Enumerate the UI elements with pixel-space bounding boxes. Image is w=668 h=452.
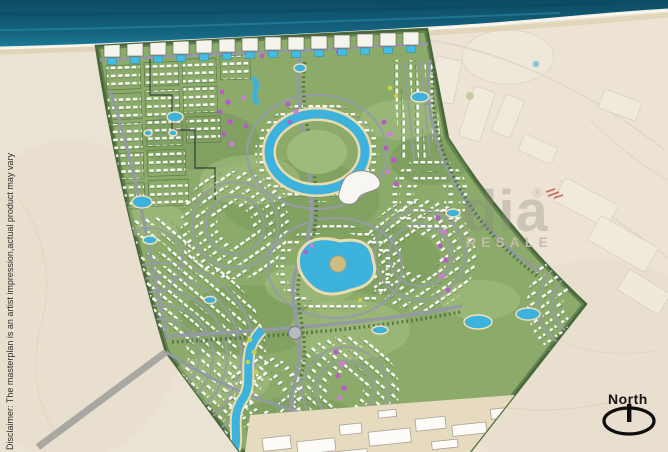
neighbour-green-spot: [466, 92, 474, 100]
lagoon-island: [330, 256, 346, 272]
compass-needle-icon: [627, 404, 631, 422]
watermark: dia ® RESALE: [462, 179, 563, 250]
masterplan-svg: dia ® RESALE Disclaimer: The masterplan …: [0, 0, 668, 452]
masterplan-image: dia ® RESALE Disclaimer: The masterplan …: [0, 0, 668, 452]
neighbour-pond: [533, 61, 539, 67]
watermark-subtext: RESALE: [466, 234, 553, 250]
disclaimer-text: Disclaimer: The masterplan is an artist …: [5, 153, 15, 450]
watermark-registered-icon: ®: [533, 186, 542, 200]
